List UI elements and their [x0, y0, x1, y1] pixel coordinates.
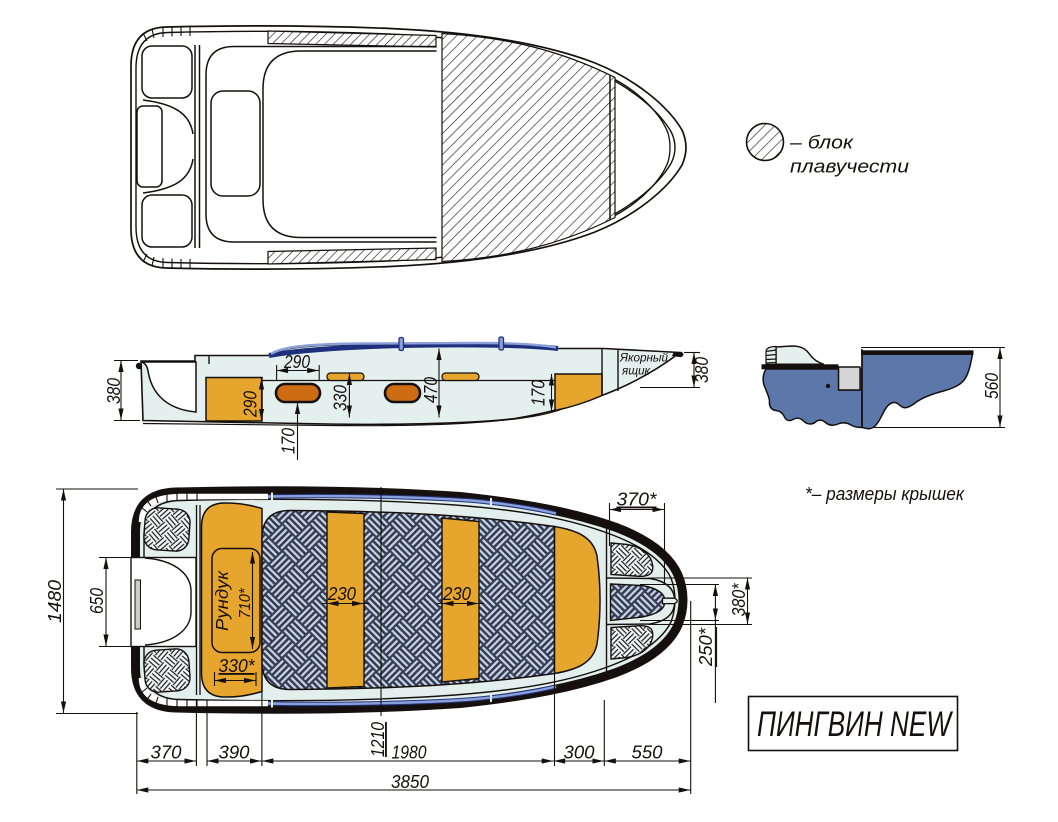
svg-text:230: 230	[327, 583, 357, 604]
svg-text:1210: 1210	[367, 721, 388, 757]
svg-text:470: 470	[420, 376, 441, 403]
svg-text:380: 380	[691, 356, 712, 383]
svg-text:ящик: ящик	[621, 366, 651, 378]
svg-text:330*: 330*	[219, 655, 256, 676]
svg-text:370: 370	[151, 742, 183, 763]
svg-text:ПИНГВИН NEW: ПИНГВИН NEW	[757, 705, 953, 744]
svg-text:*– размеры крышек: *– размеры крышек	[805, 484, 965, 504]
svg-text:290: 290	[283, 351, 310, 372]
svg-text:300: 300	[564, 742, 596, 763]
svg-text:710*: 710*	[237, 588, 254, 619]
svg-text:560: 560	[981, 372, 1002, 399]
svg-text:170: 170	[528, 379, 549, 406]
svg-text:170: 170	[278, 427, 299, 454]
svg-text:1980: 1980	[392, 742, 428, 763]
svg-text:Рундук: Рундук	[212, 570, 232, 631]
svg-text:Якорный: Якорный	[619, 353, 669, 365]
svg-text:290: 290	[240, 390, 261, 417]
svg-text:230: 230	[442, 583, 472, 604]
svg-text:– блок: – блок	[789, 133, 855, 153]
svg-text:3850: 3850	[391, 771, 430, 792]
svg-text:1480: 1480	[44, 579, 65, 623]
svg-text:плавучести: плавучести	[790, 157, 909, 177]
svg-text:380*: 380*	[728, 583, 749, 617]
svg-text:250*: 250*	[695, 627, 716, 667]
svg-text:380: 380	[103, 377, 124, 404]
svg-text:390: 390	[219, 742, 251, 763]
svg-text:650: 650	[86, 587, 107, 614]
svg-text:330: 330	[330, 384, 351, 411]
svg-text:370*: 370*	[617, 489, 658, 510]
svg-text:550: 550	[632, 742, 664, 763]
